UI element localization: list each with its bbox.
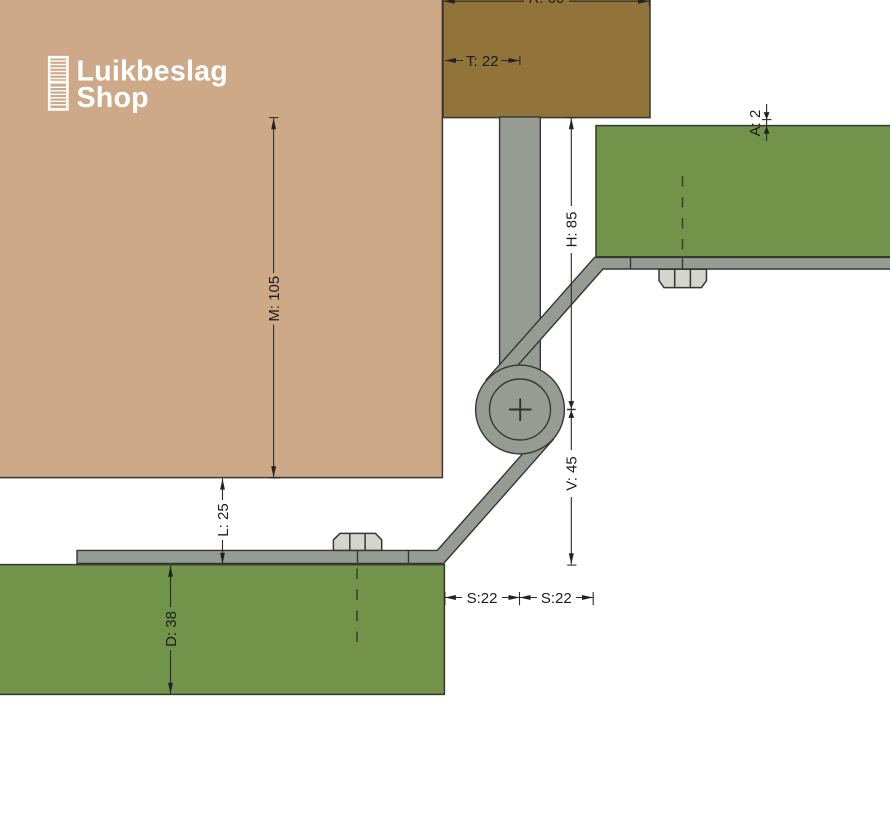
svg-text:H: 85: H: 85 bbox=[564, 212, 581, 248]
svg-text:A: 2: A: 2 bbox=[747, 110, 764, 137]
svg-text:Shop: Shop bbox=[77, 82, 149, 114]
svg-text:R: 60: R: 60 bbox=[528, 0, 564, 7]
svg-text:M: 105: M: 105 bbox=[266, 276, 283, 322]
svg-text:S:22: S:22 bbox=[541, 590, 572, 607]
svg-text:T: 22: T: 22 bbox=[466, 53, 499, 70]
svg-text:L: 25: L: 25 bbox=[215, 503, 232, 536]
svg-text:D: 38: D: 38 bbox=[163, 611, 180, 647]
svg-text:V: 45: V: 45 bbox=[564, 456, 581, 490]
svg-text:S:22: S:22 bbox=[467, 590, 498, 607]
